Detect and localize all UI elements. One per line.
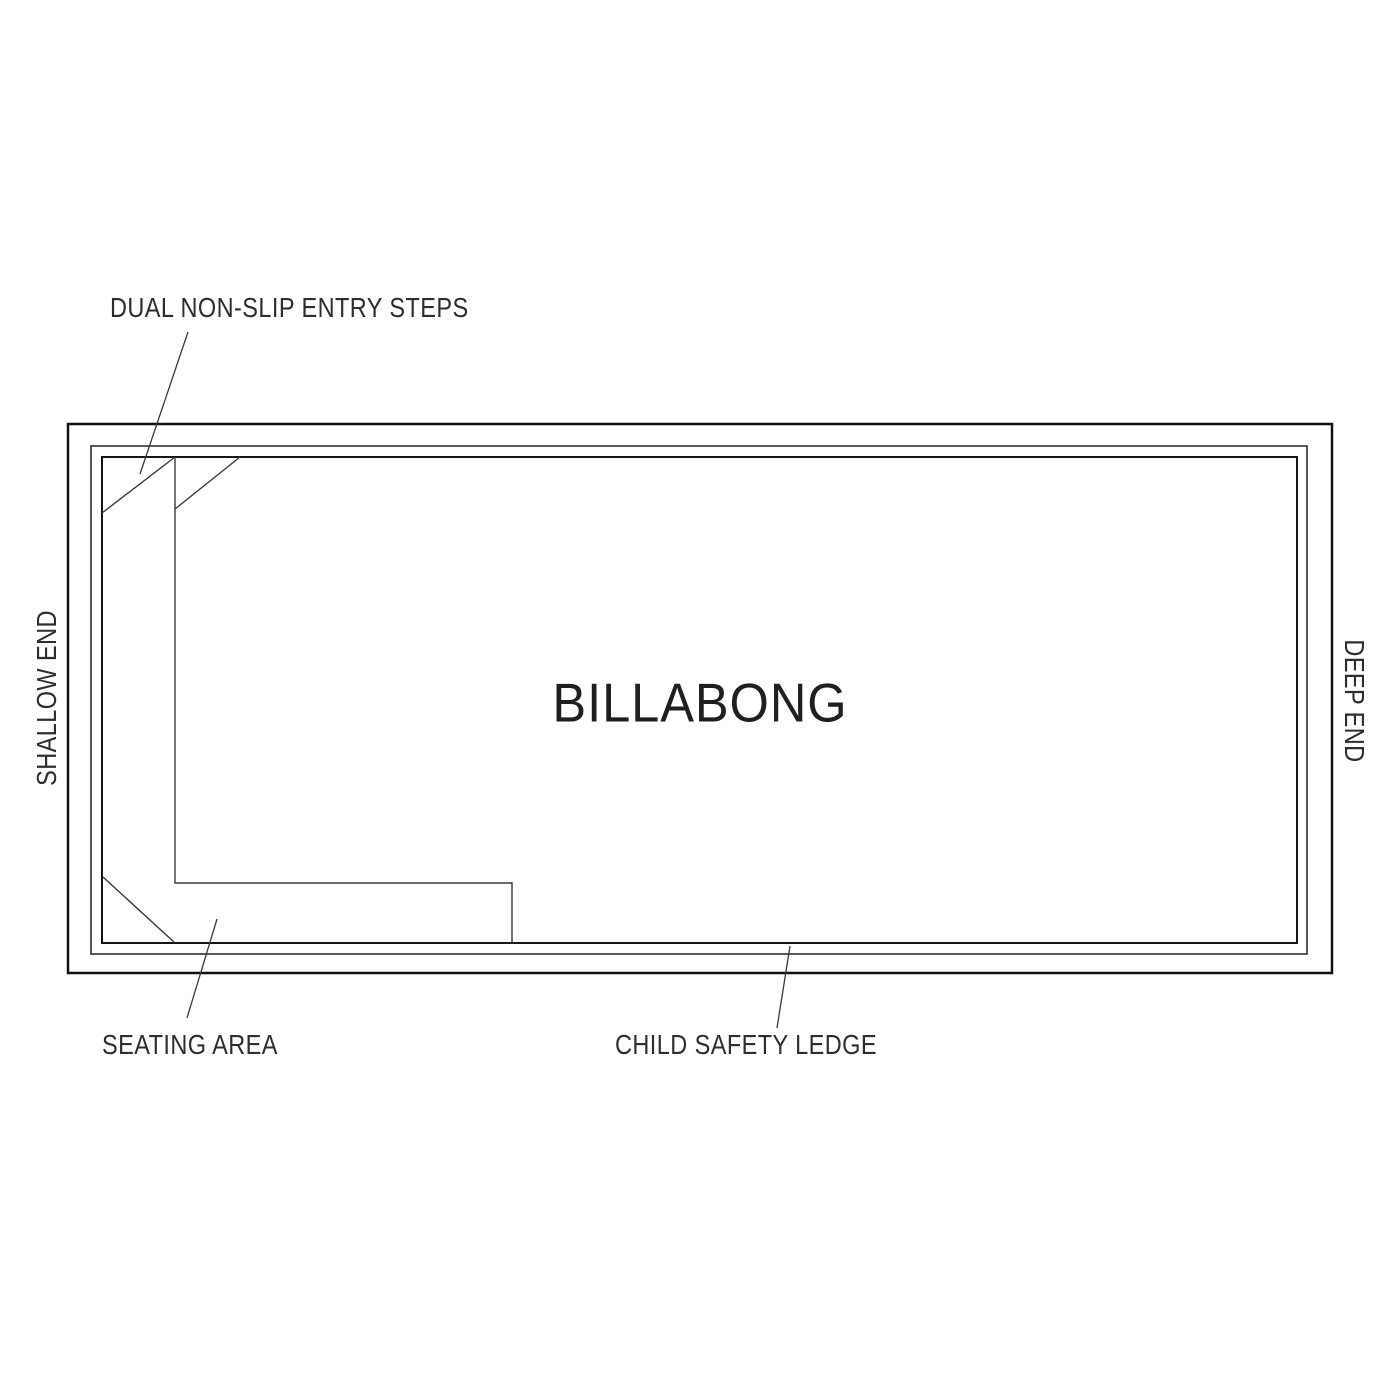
entry-step-diagonal-1 [102,457,175,513]
shallow-end-label: SHALLOW END [33,610,61,786]
step-platform-and-bench-outline [175,457,512,943]
deep-end-label: DEEP END [1340,639,1368,762]
child-safety-ledge-label: CHILD SAFETY LEDGE [615,1031,877,1059]
seating-area-leader-line [187,919,217,1018]
child-safety-ledge-leader-line [777,946,790,1028]
entry-steps-label: DUAL NON-SLIP ENTRY STEPS [110,294,469,322]
entry-steps-leader-line [140,332,188,474]
pool-plan-diagram: DUAL NON-SLIP ENTRY STEPS SHALLOW END DE… [0,0,1400,1400]
seating-corner-diagonal [103,877,175,943]
pool-name-title: BILLABONG [552,676,847,731]
seating-area-label: SEATING AREA [102,1031,278,1059]
entry-step-diagonal-2 [175,457,240,509]
